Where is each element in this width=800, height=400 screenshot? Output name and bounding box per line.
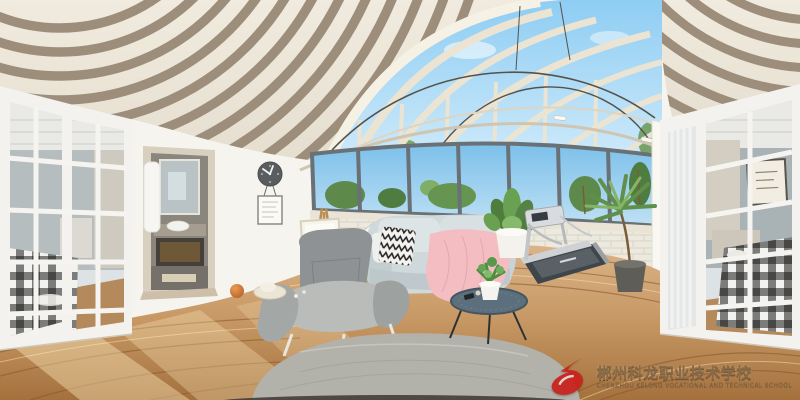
panorama-image: 郴州科龙职业技术学校 CHENZHOU KELONG VOCATIONAL AN…	[0, 0, 800, 400]
vessel-sink	[167, 221, 189, 231]
white-towel	[144, 162, 160, 232]
stone-pot	[614, 264, 646, 292]
bath-mat	[162, 274, 196, 282]
panorama-scene	[0, 0, 800, 400]
small-cup	[476, 291, 481, 296]
french-doors-left	[0, 86, 132, 350]
wardrobe	[706, 140, 740, 240]
french-doors-right	[660, 84, 800, 350]
picture-frame	[747, 159, 787, 205]
orange-ball	[230, 284, 244, 298]
bathroom-doorway	[140, 146, 218, 300]
memo-frame	[258, 196, 282, 224]
zigzag-pillow	[378, 226, 417, 266]
